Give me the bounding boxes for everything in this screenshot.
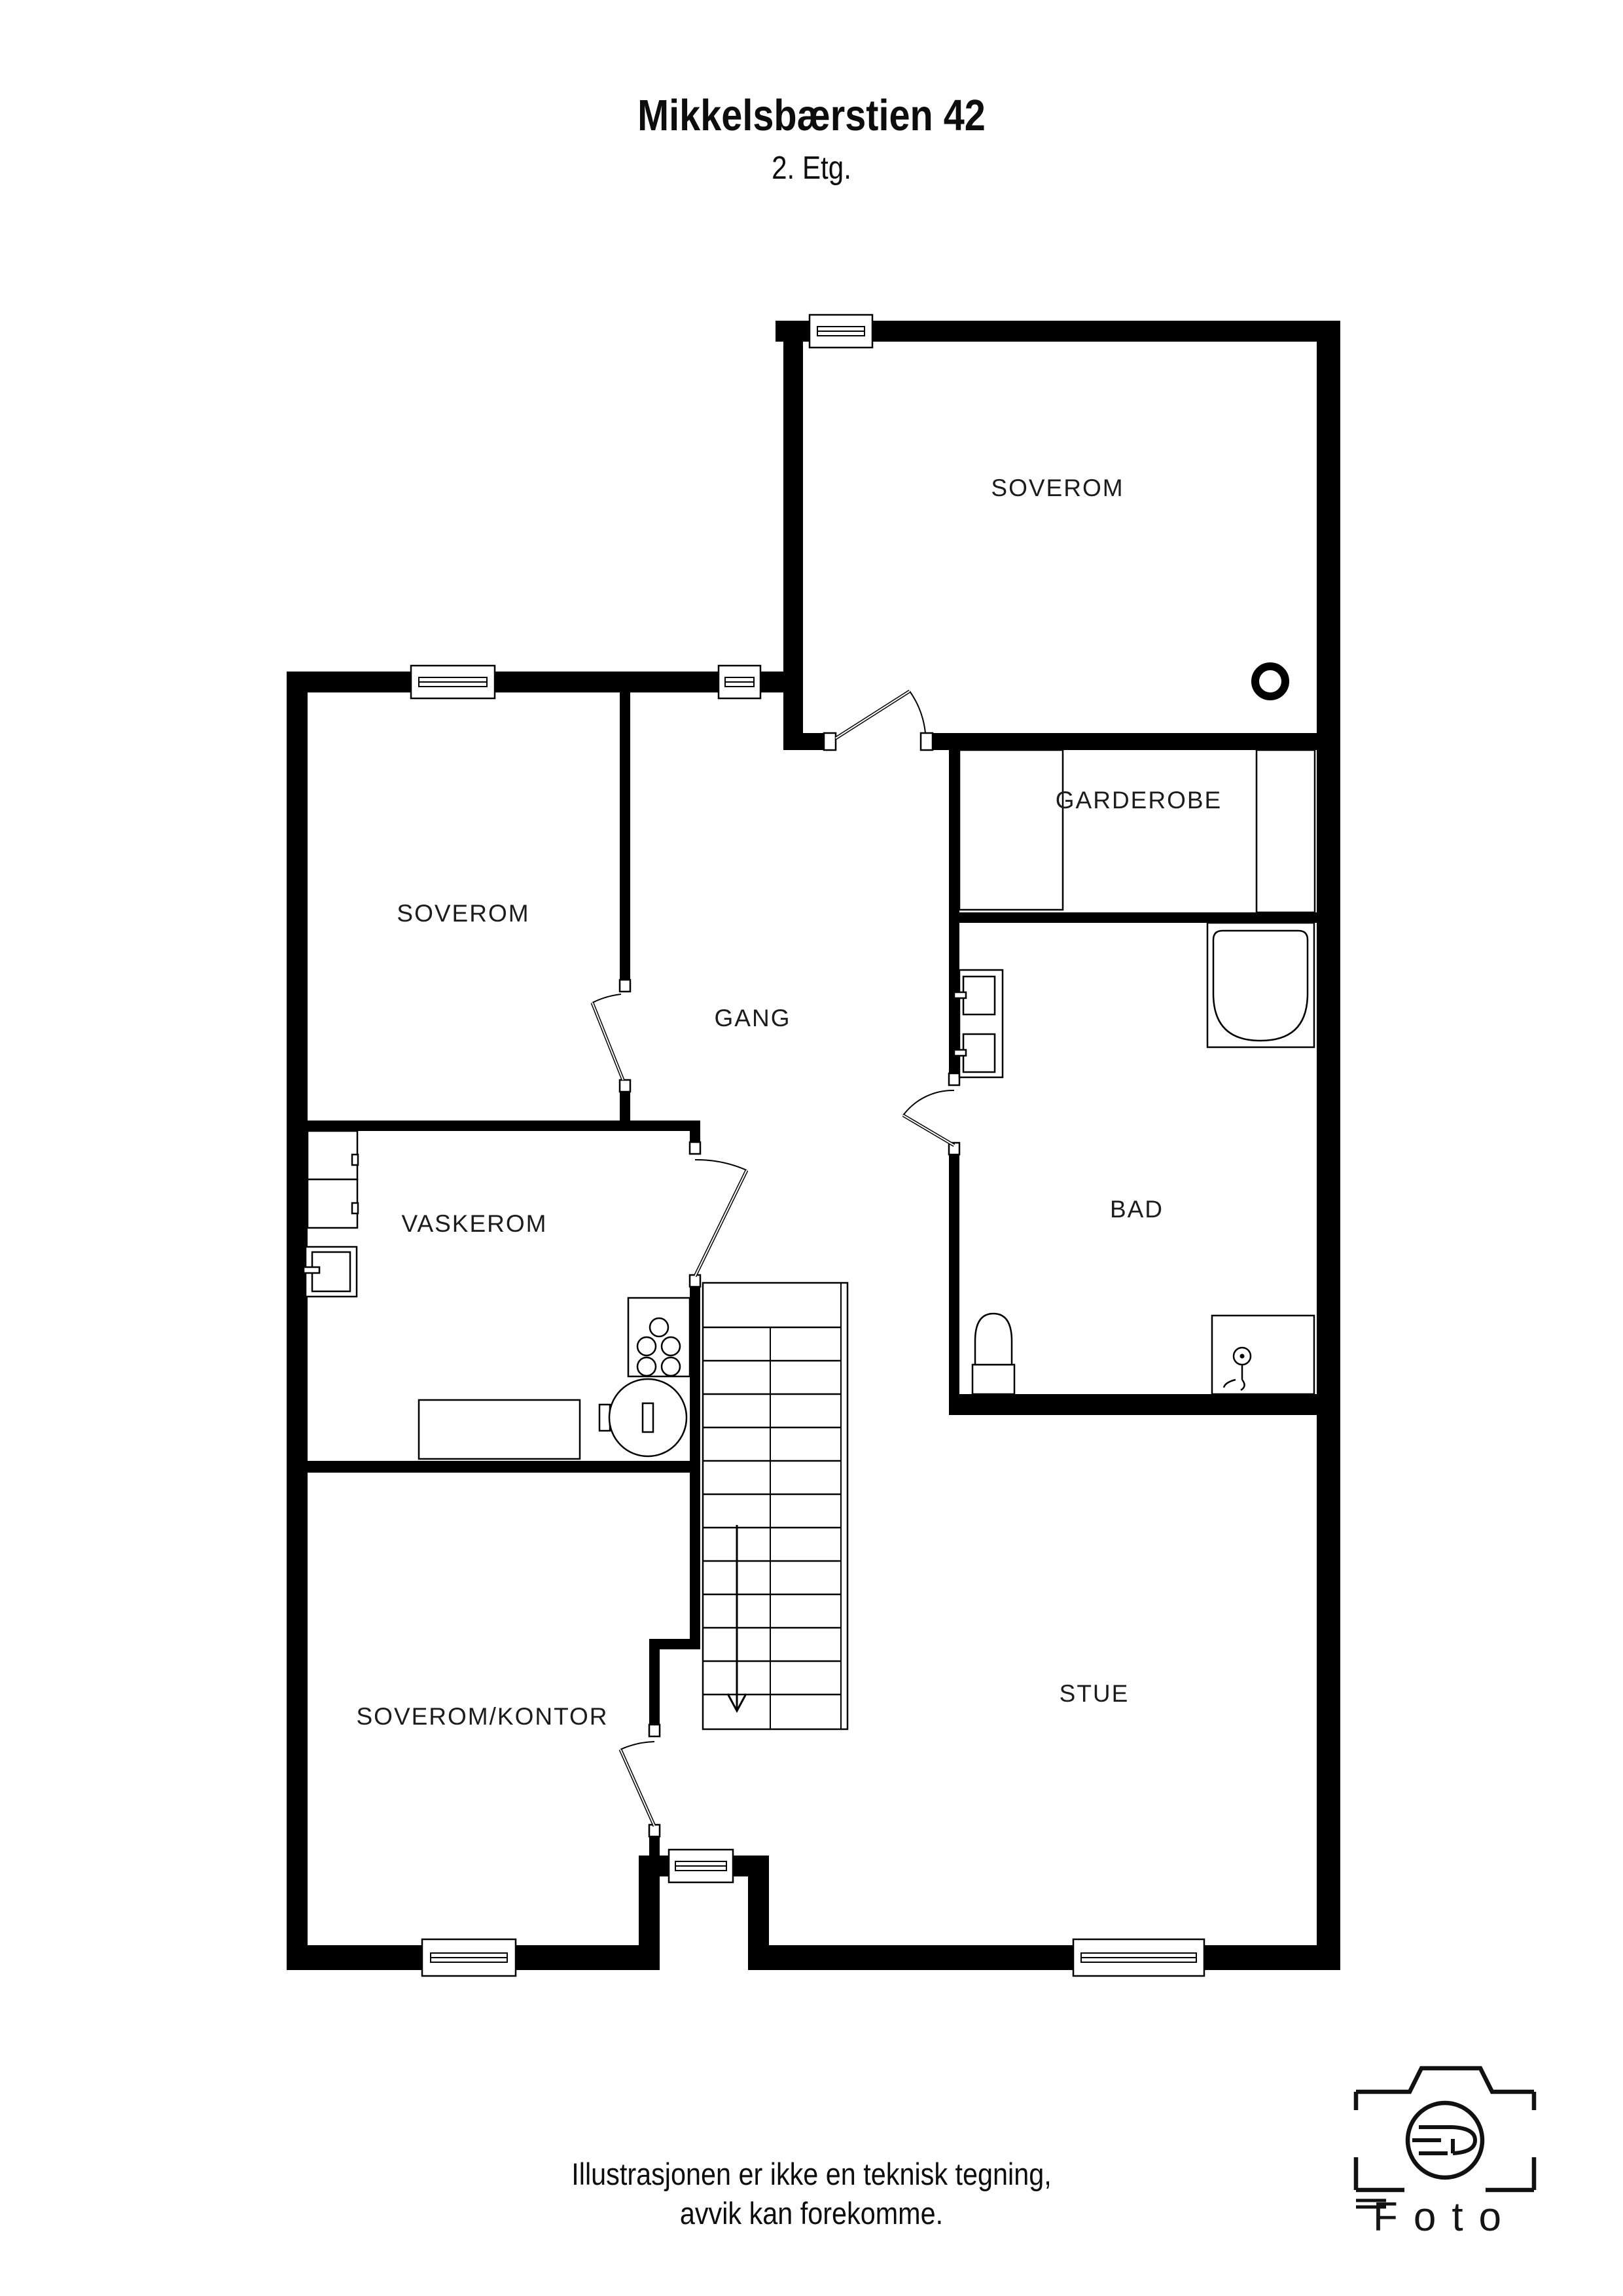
window-stue [1073,1939,1204,1976]
cabinet-handle-icon [352,1203,358,1213]
wall-soverom-left-right-upper [620,692,630,980]
wardrobe-cabinet [1257,750,1315,912]
wall-porch-right [748,1856,769,1970]
wall-vaskerom-kontor [287,1461,700,1473]
garderobe-fixtures [959,750,1315,912]
room-label-soverom-top: SOVEROM [991,475,1124,501]
cabinet-handle-icon [352,1155,358,1165]
door-soverom-left [592,980,630,1092]
room-label-soverom-kontor: SOVEROM/KONTOR [356,1703,608,1730]
wall-soverom-top-bottom [933,733,1319,750]
stove-circles-icon [628,1298,690,1376]
door-bad [903,1073,959,1155]
disclaimer-line1: Illustrasjonen er ikke en teknisk tegnin… [98,2155,1525,2194]
floorplan-page: Mikkelsbærstien 42 2. Etg. [0,0,1623,2296]
room-label-soverom-left: SOVEROM [397,900,529,927]
wall-jog-stub [649,1639,700,1649]
window-soverom-top [810,315,872,348]
photographer-logo: Foto [1347,2041,1543,2240]
laundry-sink-icon [304,1247,357,1297]
bench-icon [419,1400,580,1459]
room-label-bad: BAD [1110,1196,1164,1223]
vaskerom-fixtures [304,1131,690,1459]
wall-bad-stue [949,1394,1340,1415]
disclaimer-line2: avvik kan forekomme. [98,2194,1525,2233]
toilet-icon [972,1314,1014,1394]
wall-gang-vaskerom-upper [690,1131,700,1142]
room-label-stue: STUE [1060,1680,1130,1707]
bathtub-icon [1207,923,1314,1047]
wall-gang-vaskerom-lower [690,1287,700,1649]
door-vaskerom [690,1142,747,1287]
wardrobe-cabinet [959,750,1063,910]
shower-icon [1212,1316,1314,1394]
wall-soverom-top-stub [803,733,824,750]
wall-right-exterior [1317,321,1340,1970]
drain-ring-icon [1255,666,1285,696]
room-label-gang: GANG [715,1005,791,1031]
room-label-vaskerom: VASKEROM [402,1210,548,1237]
washing-machine-icon [599,1379,687,1456]
wall-gang-bad-upper [949,750,959,1073]
logo-wordmark: Foto [1373,2195,1517,2237]
floorplan-drawing: SOVEROM GARDEROBE SOVEROM GANG BAD VASKE… [0,0,1623,2296]
wall-garderobe-bad [949,912,1319,923]
disclaimer: Illustrasjonen er ikke en teknisk tegnin… [98,2155,1525,2233]
room-label-garderobe: GARDEROBE [1056,787,1222,814]
window-soverom-left [411,666,495,698]
wall-kontor-stue-upper [649,1649,660,1725]
wall-gang-bad-lower [949,1155,959,1405]
wall-soverom-left-right-lower [620,1092,630,1121]
wall-kontor-stue-lower [649,1837,660,1867]
bad-fixtures [954,923,1314,1394]
staircase [703,1283,847,1729]
window-kontor [422,1939,516,1976]
window-gang [719,666,760,698]
wall-soverom-vaskerom [287,1121,700,1131]
door-kontor [620,1725,660,1837]
cabinet-icon [308,1131,357,1179]
wall-porch-left [639,1856,660,1970]
door-soverom-top [824,691,933,750]
cabinet-icon [308,1179,357,1228]
wall-left-exterior [287,672,308,1970]
wall-bottom-right [769,1945,1340,1970]
camera-logo-icon: Foto [1347,2041,1543,2237]
double-sink-icon [954,970,1003,1077]
window-porch [669,1850,733,1882]
